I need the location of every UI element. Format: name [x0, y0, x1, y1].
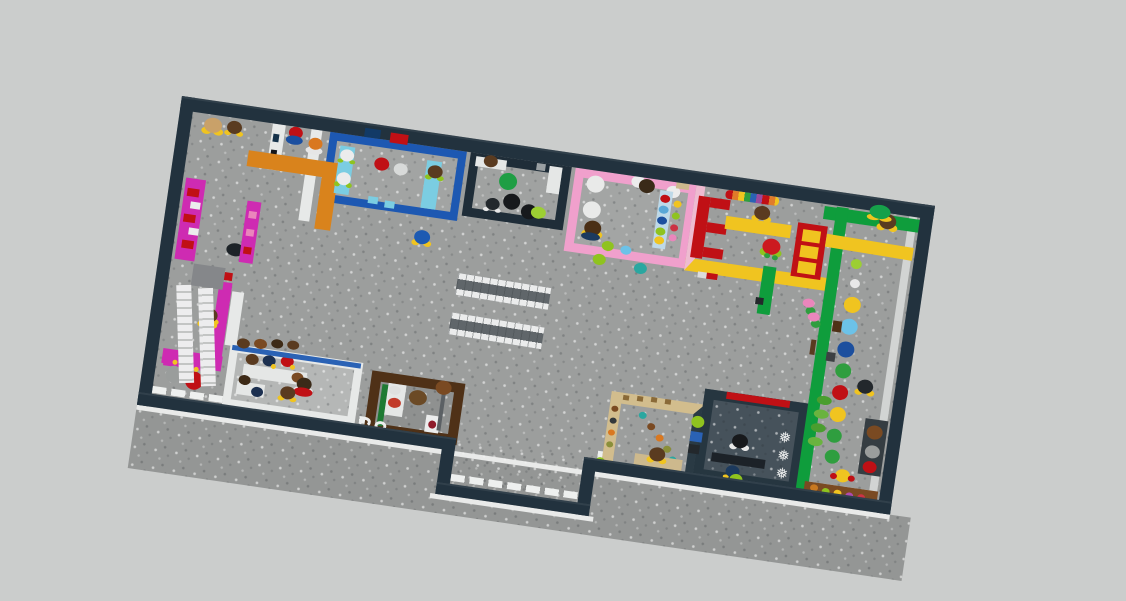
shelf-item-red	[183, 214, 196, 224]
tan-stud	[623, 395, 630, 401]
wig-on-wall	[271, 339, 284, 350]
snowflake: ❅	[773, 465, 791, 482]
snowflake: ❅	[774, 447, 792, 464]
flower-yellow	[829, 406, 847, 423]
stairs-ramp	[191, 263, 226, 289]
dark-bit	[755, 297, 764, 305]
tan-stud	[637, 396, 644, 402]
escalator	[448, 312, 544, 349]
3d-viewport[interactable]: ❅❅❅	[0, 0, 1126, 601]
candy-shelf2-box	[799, 245, 819, 259]
escalator	[455, 273, 551, 310]
tan-stud	[665, 399, 672, 405]
candy-shelf2-box	[797, 261, 817, 275]
gym-shelf-dark	[688, 444, 700, 454]
white-blob	[849, 278, 860, 288]
tan-stud	[651, 397, 658, 403]
minifig-brown-hair	[226, 120, 243, 135]
flower-blue	[836, 340, 855, 358]
dark-bit	[826, 352, 836, 362]
shelf-item-pink	[246, 229, 255, 237]
minifig-dark-garden	[856, 379, 874, 395]
minifig-gorilla	[203, 117, 223, 134]
teal-blob	[633, 262, 647, 275]
shelf-item-white	[188, 227, 199, 235]
wig-on-wall	[287, 340, 300, 351]
shelf-item-pink	[248, 211, 257, 219]
flower-green	[834, 362, 852, 379]
shelf-item-red	[187, 188, 200, 198]
rack-hook	[193, 367, 199, 373]
dark-bit	[832, 320, 842, 332]
shelf-item-red	[181, 240, 194, 250]
salon-tab	[368, 196, 379, 204]
blue-duck	[413, 229, 431, 245]
gym-shelf-blue	[690, 431, 703, 443]
staircase	[198, 288, 216, 386]
lime-blob	[850, 258, 862, 269]
flower-green	[824, 449, 841, 465]
staircase	[176, 285, 194, 383]
salon-tab	[384, 200, 395, 208]
extinguisher-red	[706, 273, 718, 281]
counter-item-blue	[272, 134, 279, 143]
red-arm	[847, 475, 855, 482]
candy-shelf2-box	[802, 229, 822, 243]
flower-yellow	[843, 296, 862, 314]
cafe-item-gray	[536, 163, 546, 171]
shelf-item-white	[190, 201, 201, 209]
flower-sky	[840, 318, 859, 336]
flower-green	[826, 428, 843, 444]
shelf-item-red	[243, 247, 252, 255]
mall-building: ❅❅❅	[137, 96, 935, 515]
flower-red	[831, 384, 849, 401]
snowflake: ❅	[776, 430, 794, 447]
